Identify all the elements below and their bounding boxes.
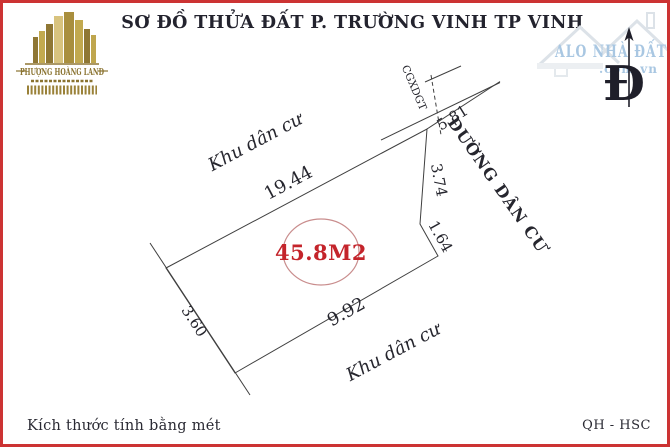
- dim-right-upper-label: 3.74: [427, 162, 451, 198]
- north-arrow: Đ: [603, 27, 645, 112]
- dim-left-label: 3.60: [178, 302, 211, 340]
- area-badge: 45.8M2: [275, 219, 367, 285]
- road-name-label: ĐƯỜNG DÂN CƯ: [444, 113, 554, 258]
- residential-area-top-label: Khu dân cư: [204, 107, 308, 176]
- reference-code: QH - HSC: [582, 418, 651, 433]
- land-plot-sketch: SƠ ĐỒ THỬA ĐẤT P. TRƯỜNG VINH TP VINH AL…: [0, 0, 670, 447]
- cgxdgt-leader-line: [425, 66, 461, 82]
- dim-right-lower-label: 1.64: [424, 218, 456, 256]
- logo-left-buildings-icon: [25, 12, 99, 64]
- logo-left-name: PHƯỢNG HOÀNG LAND: [20, 66, 104, 78]
- dim-top-label: 19.44: [261, 162, 316, 205]
- dimension-labels: 19.44 5.81 3.74 1.64 9.92 3.60: [178, 101, 472, 340]
- plot-diagram: ALO NHÀ ĐẤT .com.vn Đ PHƯỢN: [3, 3, 670, 447]
- area-label: 45.8M2: [275, 240, 367, 265]
- logo-left: PHƯỢNG HOÀNG LAND: [16, 12, 108, 90]
- north-arrow-label: Đ: [603, 56, 645, 112]
- units-note: Kích thước tính bằng mét: [27, 418, 221, 434]
- surrounding-labels: Khu dân cư Khu dân cư ĐƯỜNG DÂN CƯ CGXDG…: [204, 64, 554, 387]
- cgxdgt-label: CGXDGT: [399, 64, 429, 113]
- residential-area-bottom-label: Khu dân cư: [342, 317, 446, 386]
- dim-bottom-label: 9.92: [324, 293, 369, 331]
